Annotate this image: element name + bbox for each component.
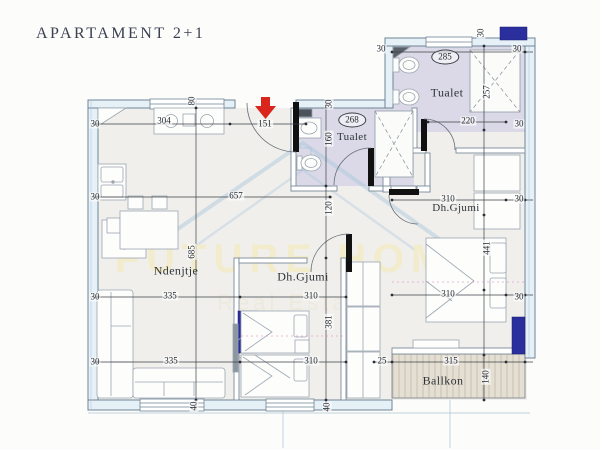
dim-wall-11: 30	[514, 293, 525, 302]
dim-top-window: 80	[188, 96, 197, 107]
kitchen-sink	[98, 164, 126, 200]
marker-right	[512, 317, 525, 354]
dim-wall-2: 30	[512, 45, 523, 54]
dim-balcony-width: 315	[443, 357, 459, 366]
floor-plan-page: APARTAMENT 2+1 FUTURE HOME Real Estate	[0, 0, 600, 450]
dim-wall-5: 30	[90, 120, 101, 129]
room-label-bath-large: Tualet	[431, 86, 464, 101]
dim-living-width: 657	[228, 192, 244, 201]
dim-bed-mid-height: 381	[325, 314, 334, 330]
nightstand-mid	[295, 340, 309, 353]
dim-wall-7: 30	[90, 293, 101, 302]
dim-wall-10: 30	[514, 195, 525, 204]
dim-entry-width: 151	[257, 120, 273, 129]
page-title: APARTAMENT 2+1	[36, 25, 205, 43]
dim-sofa-width-2: 335	[163, 357, 179, 366]
dim-wall-3: 30	[477, 28, 486, 39]
dim-window-2: 40	[323, 402, 332, 413]
dim-bed-mid-width-top: 310	[303, 292, 319, 301]
room-label-living: Ndenjtje	[154, 264, 199, 279]
floor-plan-drawing: FUTURE HOME Real Estate	[0, 0, 600, 450]
dim-window-1: 40	[190, 401, 199, 412]
marker-top-right	[500, 27, 527, 40]
dim-wall-9: 30	[514, 120, 525, 129]
dim-hall-height: 120	[325, 200, 334, 216]
bidet-large-bath	[393, 89, 419, 105]
dim-wall-1: 30	[376, 45, 387, 54]
wardrobe-column	[347, 262, 380, 398]
toilet-large-bath	[393, 57, 419, 73]
window-bath-top	[426, 37, 472, 47]
toilet-small-bath	[297, 155, 321, 171]
dim-living-height: 685	[188, 244, 197, 260]
bed-double	[426, 238, 506, 322]
shower-large	[470, 50, 520, 112]
bed-single-2	[241, 355, 309, 397]
room-label-bath-small: Tualet	[337, 131, 367, 143]
tv-stand-bedroom	[413, 340, 459, 348]
dim-bath-small-height: 160	[325, 131, 334, 147]
dim-sofa-width-1: 335	[162, 292, 178, 301]
dim-bath-large-inner: 220	[460, 117, 476, 126]
dim-bath-large-shower: 257	[483, 84, 492, 100]
dim-bath-small-width: 268	[338, 113, 366, 128]
dim-wall-8: 30	[90, 358, 101, 367]
dim-bed-mid-width-bottom: 310	[303, 357, 319, 366]
dim-bed-right-width-top: 310	[440, 195, 456, 204]
dim-wall-6: 30	[90, 193, 101, 202]
dim-bed-right-height: 441	[483, 240, 492, 256]
dim-bed-right-width-bottom: 310	[440, 290, 456, 299]
dim-kitchen-width: 304	[156, 117, 172, 126]
dim-balcony-gap: 25	[377, 357, 388, 366]
shower-small	[375, 111, 413, 177]
dim-wall-4: 30	[325, 99, 334, 110]
room-label-bed-right: Dh.Gjumi	[432, 202, 480, 214]
dim-balcony-height: 140	[482, 369, 491, 385]
room-label-bed-mid: Dh.Gjumi	[277, 270, 329, 285]
window-bottom-mid	[266, 399, 314, 411]
room-label-balcony: Ballkon	[423, 374, 464, 389]
dim-bath-large-width: 285	[431, 50, 459, 65]
